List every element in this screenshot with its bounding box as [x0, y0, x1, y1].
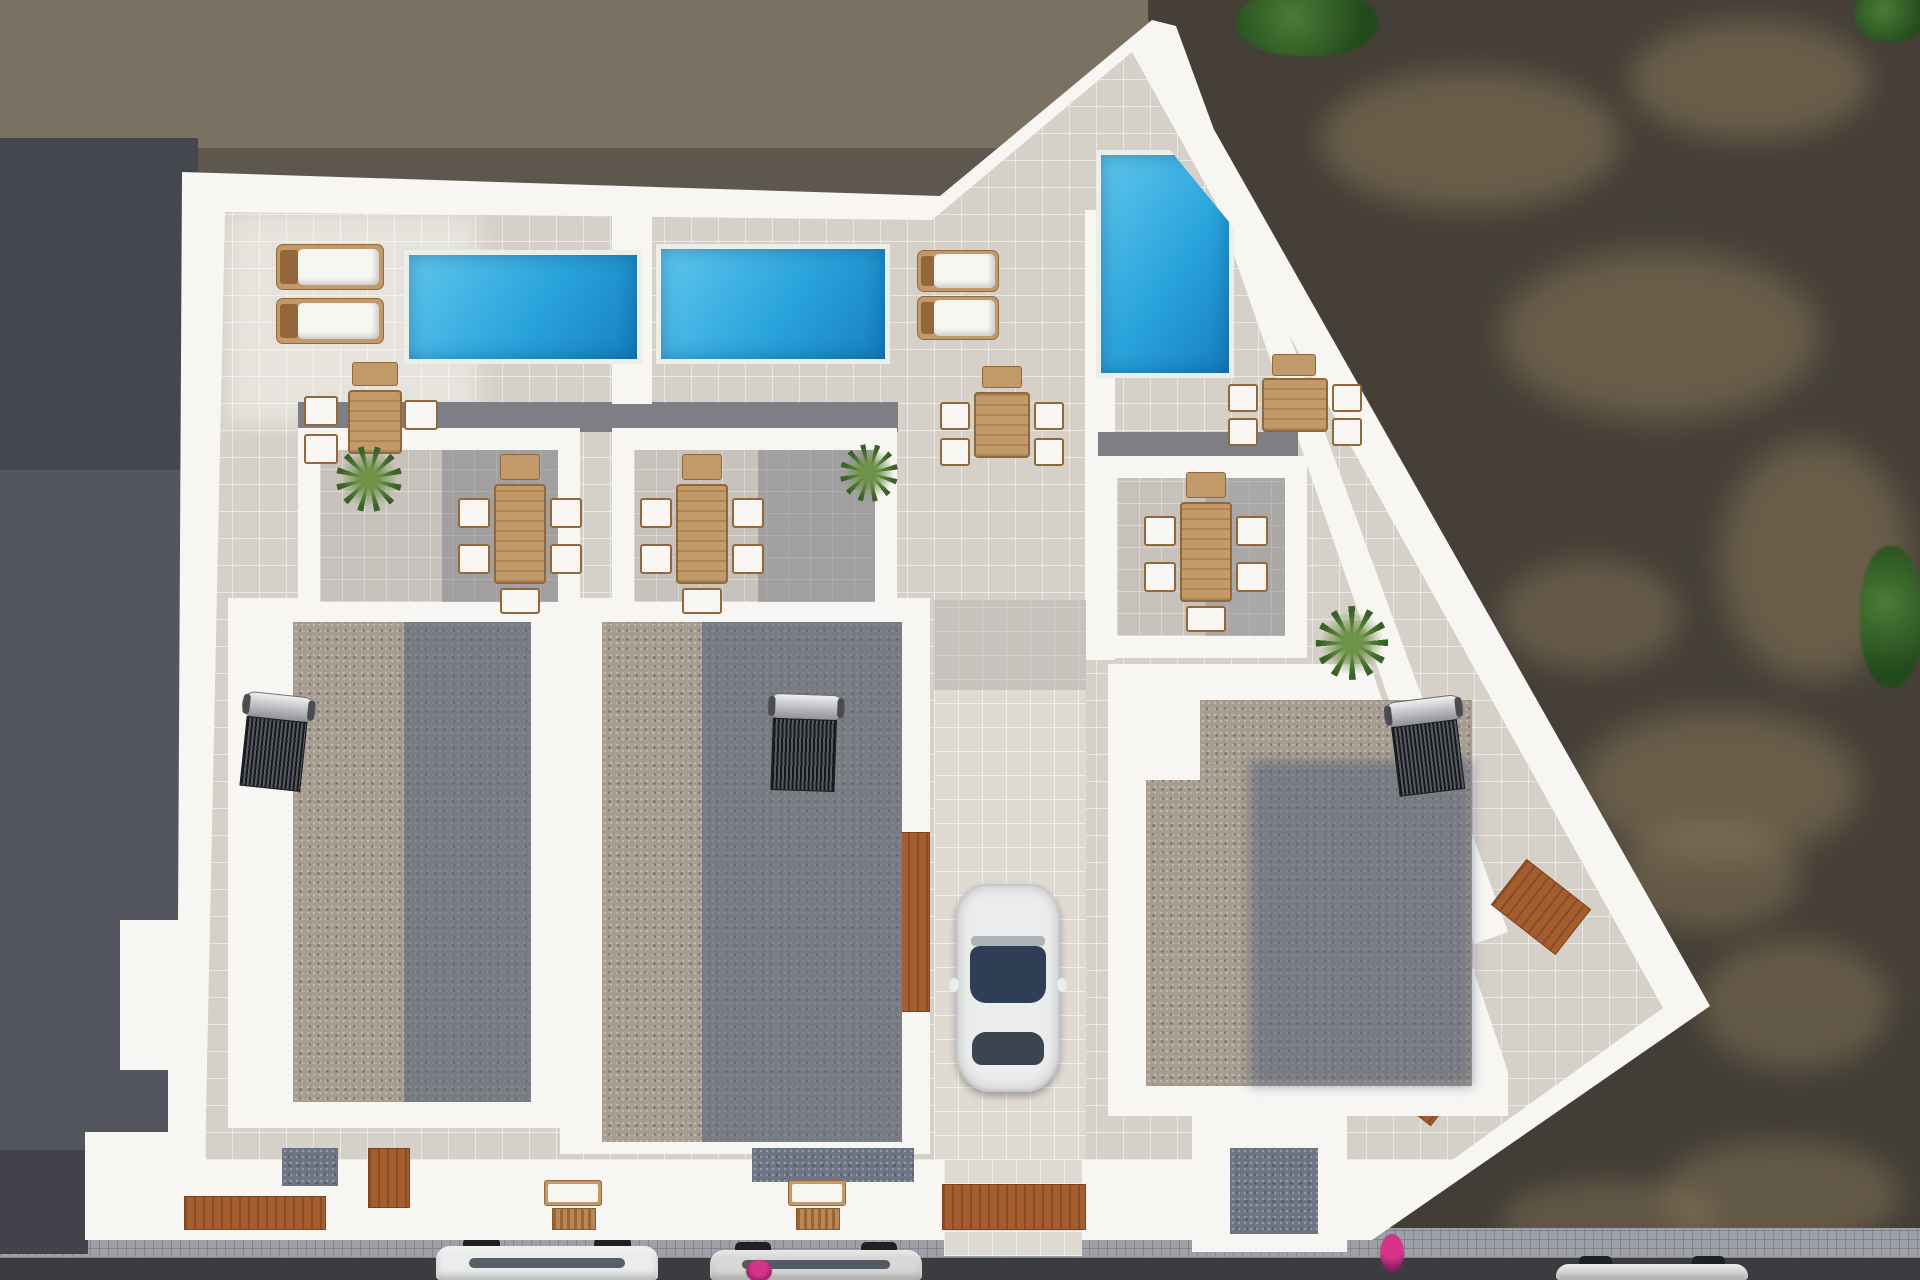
dining-chair	[682, 588, 722, 614]
tree-shadow-8	[1700, 940, 1890, 1070]
dining-bench-wood	[982, 366, 1022, 388]
streetcar-body	[1556, 1264, 1748, 1280]
facade-gravel-left	[282, 1148, 338, 1186]
facade-gravel-mid	[752, 1148, 914, 1182]
streetcar-body	[436, 1246, 658, 1280]
lounger-cushion	[298, 303, 379, 340]
sun-lounger-4	[917, 296, 999, 340]
dining-chair	[1034, 402, 1064, 430]
heater-solar-panel	[771, 718, 837, 792]
car-mirror-right	[1057, 978, 1067, 992]
pool-1	[404, 250, 642, 364]
ground-bottom-left	[0, 1150, 88, 1254]
bush-right-edge	[1860, 546, 1920, 688]
pink-flower-pot	[1380, 1234, 1404, 1272]
dining-chair	[550, 498, 582, 528]
heater-cylinder	[767, 693, 846, 722]
dining-chair	[458, 544, 490, 574]
heater-cap-right	[837, 698, 845, 718]
streetcar-windshield	[469, 1258, 624, 1268]
car-cowl	[971, 936, 1046, 946]
aerial-render-canvas	[0, 0, 1920, 1280]
solar-heater-2	[764, 693, 846, 798]
dining-chair	[458, 498, 490, 528]
heater-cap-left	[242, 693, 251, 714]
parked-car-driveway	[956, 884, 1060, 1092]
dining-chair	[940, 438, 970, 466]
dining-bench-wood	[682, 454, 722, 480]
lounger-headrest	[921, 256, 935, 286]
dining-chair	[550, 544, 582, 574]
solar-heater-1	[233, 690, 317, 797]
dining-chair	[1236, 562, 1268, 592]
dining-table	[676, 484, 728, 584]
entrance-bench-1	[544, 1180, 602, 1206]
dining-chair	[1228, 418, 1258, 446]
dining-chair	[1186, 606, 1226, 632]
sun-lounger-3	[917, 250, 999, 292]
pink-figure-sidewalk	[746, 1260, 772, 1280]
dining-chair	[404, 400, 438, 430]
heater-cap-left	[1384, 705, 1393, 726]
entrance-doormat-1	[552, 1208, 596, 1230]
dining-chair	[304, 396, 338, 426]
driveway-upper-shade	[934, 600, 1086, 690]
wood-deck-bottom-left	[184, 1196, 326, 1230]
dining-chair	[1144, 562, 1176, 592]
wood-deck-entry-1	[368, 1148, 410, 1208]
dining-chair	[1332, 418, 1362, 446]
sun-lounger-1	[276, 244, 384, 290]
heater-solar-panel	[239, 716, 307, 792]
dining-bench-wood	[1272, 354, 1316, 376]
lounger-headrest	[280, 250, 298, 283]
bench-cushion	[792, 1184, 842, 1202]
tree-shadow-5	[1500, 560, 1680, 670]
tree-shadow-3	[1500, 250, 1820, 420]
street-car-2	[710, 1250, 922, 1280]
street-car-1	[436, 1246, 658, 1280]
solar-heater-3	[1382, 693, 1474, 802]
sun-lounger-2	[276, 298, 384, 344]
dining-bench-wood	[1186, 472, 1226, 498]
entry-3-gravel	[1230, 1148, 1318, 1234]
dining-chair	[732, 544, 764, 574]
roof-3-gravel-shadow	[1250, 760, 1472, 1086]
tree-shadow-1	[1320, 70, 1620, 210]
car-mirror-left	[949, 978, 959, 992]
bench-cushion	[548, 1184, 598, 1202]
heater-cap-left	[768, 696, 776, 716]
dining-table	[974, 392, 1030, 458]
entrance-bench-2	[788, 1180, 846, 1206]
dining-chair	[1332, 384, 1362, 412]
dining-chair	[304, 434, 338, 464]
dining-chair	[940, 402, 970, 430]
street-car-3	[1556, 1264, 1748, 1280]
dining-bench-wood	[352, 362, 398, 386]
dining-chair	[640, 498, 672, 528]
entrance-doormat-2	[796, 1208, 840, 1230]
dining-chair	[500, 588, 540, 614]
lounger-cushion	[298, 249, 379, 286]
lounger-headrest	[921, 302, 935, 334]
pool-2	[656, 244, 890, 364]
lounger-cushion	[934, 300, 995, 335]
streetcar-body	[710, 1250, 922, 1280]
dining-table	[1262, 378, 1328, 432]
lounger-cushion	[934, 254, 995, 288]
lounger-headrest	[280, 304, 298, 337]
heater-cap-right	[307, 700, 316, 721]
dining-chair	[732, 498, 764, 528]
bush-top	[1236, 0, 1378, 56]
dining-chair	[1144, 516, 1176, 546]
heater-solar-panel	[1392, 719, 1466, 796]
car-rear-window	[972, 1032, 1045, 1065]
roof-1-gravel-shadow	[404, 622, 531, 1102]
car-body	[956, 884, 1060, 1092]
dining-table	[348, 390, 402, 454]
dining-chair	[640, 544, 672, 574]
dining-chair	[1228, 384, 1258, 412]
dining-chair	[1034, 438, 1064, 466]
tree-shadow-2	[1630, 20, 1870, 140]
heater-cap-right	[1454, 697, 1463, 718]
dining-bench-wood	[500, 454, 540, 480]
dining-chair	[1236, 516, 1268, 546]
wood-wall-driveway	[898, 832, 930, 1012]
dining-table	[494, 484, 546, 584]
car-windshield	[970, 946, 1047, 1002]
dining-table	[1180, 502, 1232, 602]
wood-deck-bottom-right	[942, 1184, 1086, 1230]
